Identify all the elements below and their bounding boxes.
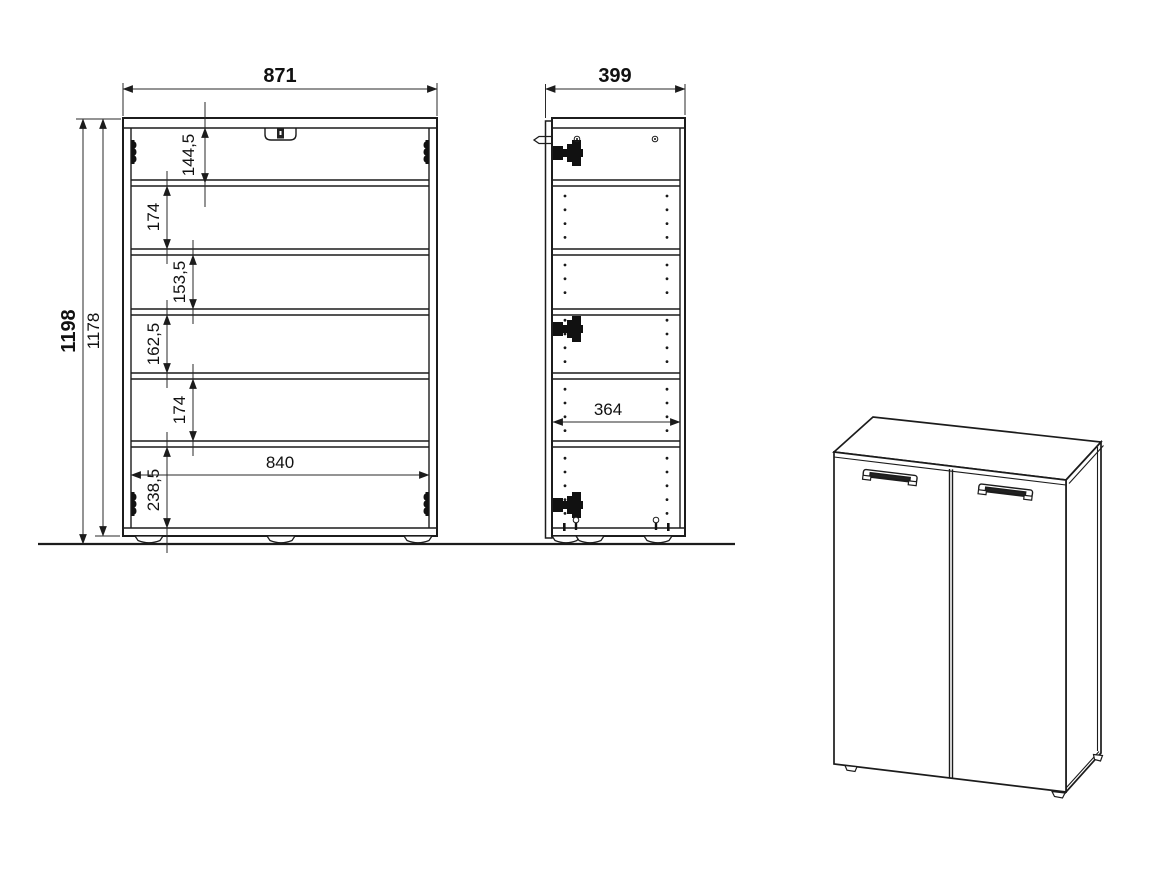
cabinet-foot <box>576 536 604 543</box>
shelf-line <box>553 373 680 379</box>
front-view: 871 1198 1178 144,5 174 <box>58 65 437 553</box>
cabinet-foot <box>644 536 672 543</box>
shelf-line <box>131 180 429 186</box>
dim-shelf-gap-4: 162,5 <box>144 300 167 388</box>
svg-text:153,5: 153,5 <box>170 261 189 304</box>
shelf-line <box>553 441 680 447</box>
hinge <box>553 140 583 166</box>
shelf-line <box>131 309 429 315</box>
cabinet-foot <box>404 536 432 543</box>
svg-text:1198: 1198 <box>58 309 80 352</box>
shelf-line <box>131 441 429 447</box>
bottom-screws <box>563 517 670 531</box>
technical-drawing: 871 1198 1178 144,5 174 <box>0 0 1170 877</box>
dim-side-inner-depth: 364 <box>553 400 680 422</box>
cam-lock <box>265 128 296 140</box>
shelf-line <box>553 309 680 315</box>
hinge <box>553 316 583 342</box>
screw <box>574 136 658 142</box>
svg-text:144,5: 144,5 <box>179 134 198 177</box>
dim-front-inner-width: 840 <box>131 453 429 475</box>
dim-shelf-gap-6: 238,5 <box>144 432 167 553</box>
svg-text:871: 871 <box>263 65 296 87</box>
shelf-line <box>131 249 429 255</box>
hinge-mark <box>132 492 137 516</box>
dim-shelf-gap-2: 174 <box>144 171 167 264</box>
hinge-mark <box>132 140 137 164</box>
drawing-page: 871 1198 1178 144,5 174 <box>0 0 1170 877</box>
dim-shelf-gap-5: 174 <box>170 364 193 456</box>
shelf-line <box>553 180 680 186</box>
iso-right-face <box>1066 442 1101 792</box>
svg-text:174: 174 <box>144 203 163 231</box>
svg-text:174: 174 <box>170 396 189 424</box>
cabinet-foot <box>552 536 580 543</box>
hinge-mark <box>424 140 429 164</box>
svg-text:162,5: 162,5 <box>144 323 163 366</box>
shelf-line <box>131 373 429 379</box>
iso-view <box>834 417 1104 798</box>
shelf-line <box>553 249 680 255</box>
hinge-mark <box>424 492 429 516</box>
dim-front-width: 871 <box>123 65 437 116</box>
svg-text:840: 840 <box>266 453 294 472</box>
wall-bracket <box>534 137 552 144</box>
svg-text:399: 399 <box>598 65 631 87</box>
cabinet-foot <box>267 536 295 543</box>
hinge <box>553 492 583 518</box>
dim-shelf-gap-3: 153,5 <box>170 240 193 324</box>
dim-side-depth: 399 <box>546 65 686 118</box>
svg-text:364: 364 <box>594 400 622 419</box>
svg-text:1178: 1178 <box>84 313 103 350</box>
side-view: 399 364 <box>534 65 685 543</box>
cabinet-foot <box>135 536 163 543</box>
dim-front-height-body: 1178 <box>84 119 120 536</box>
shelf-pin-holes <box>564 195 669 515</box>
